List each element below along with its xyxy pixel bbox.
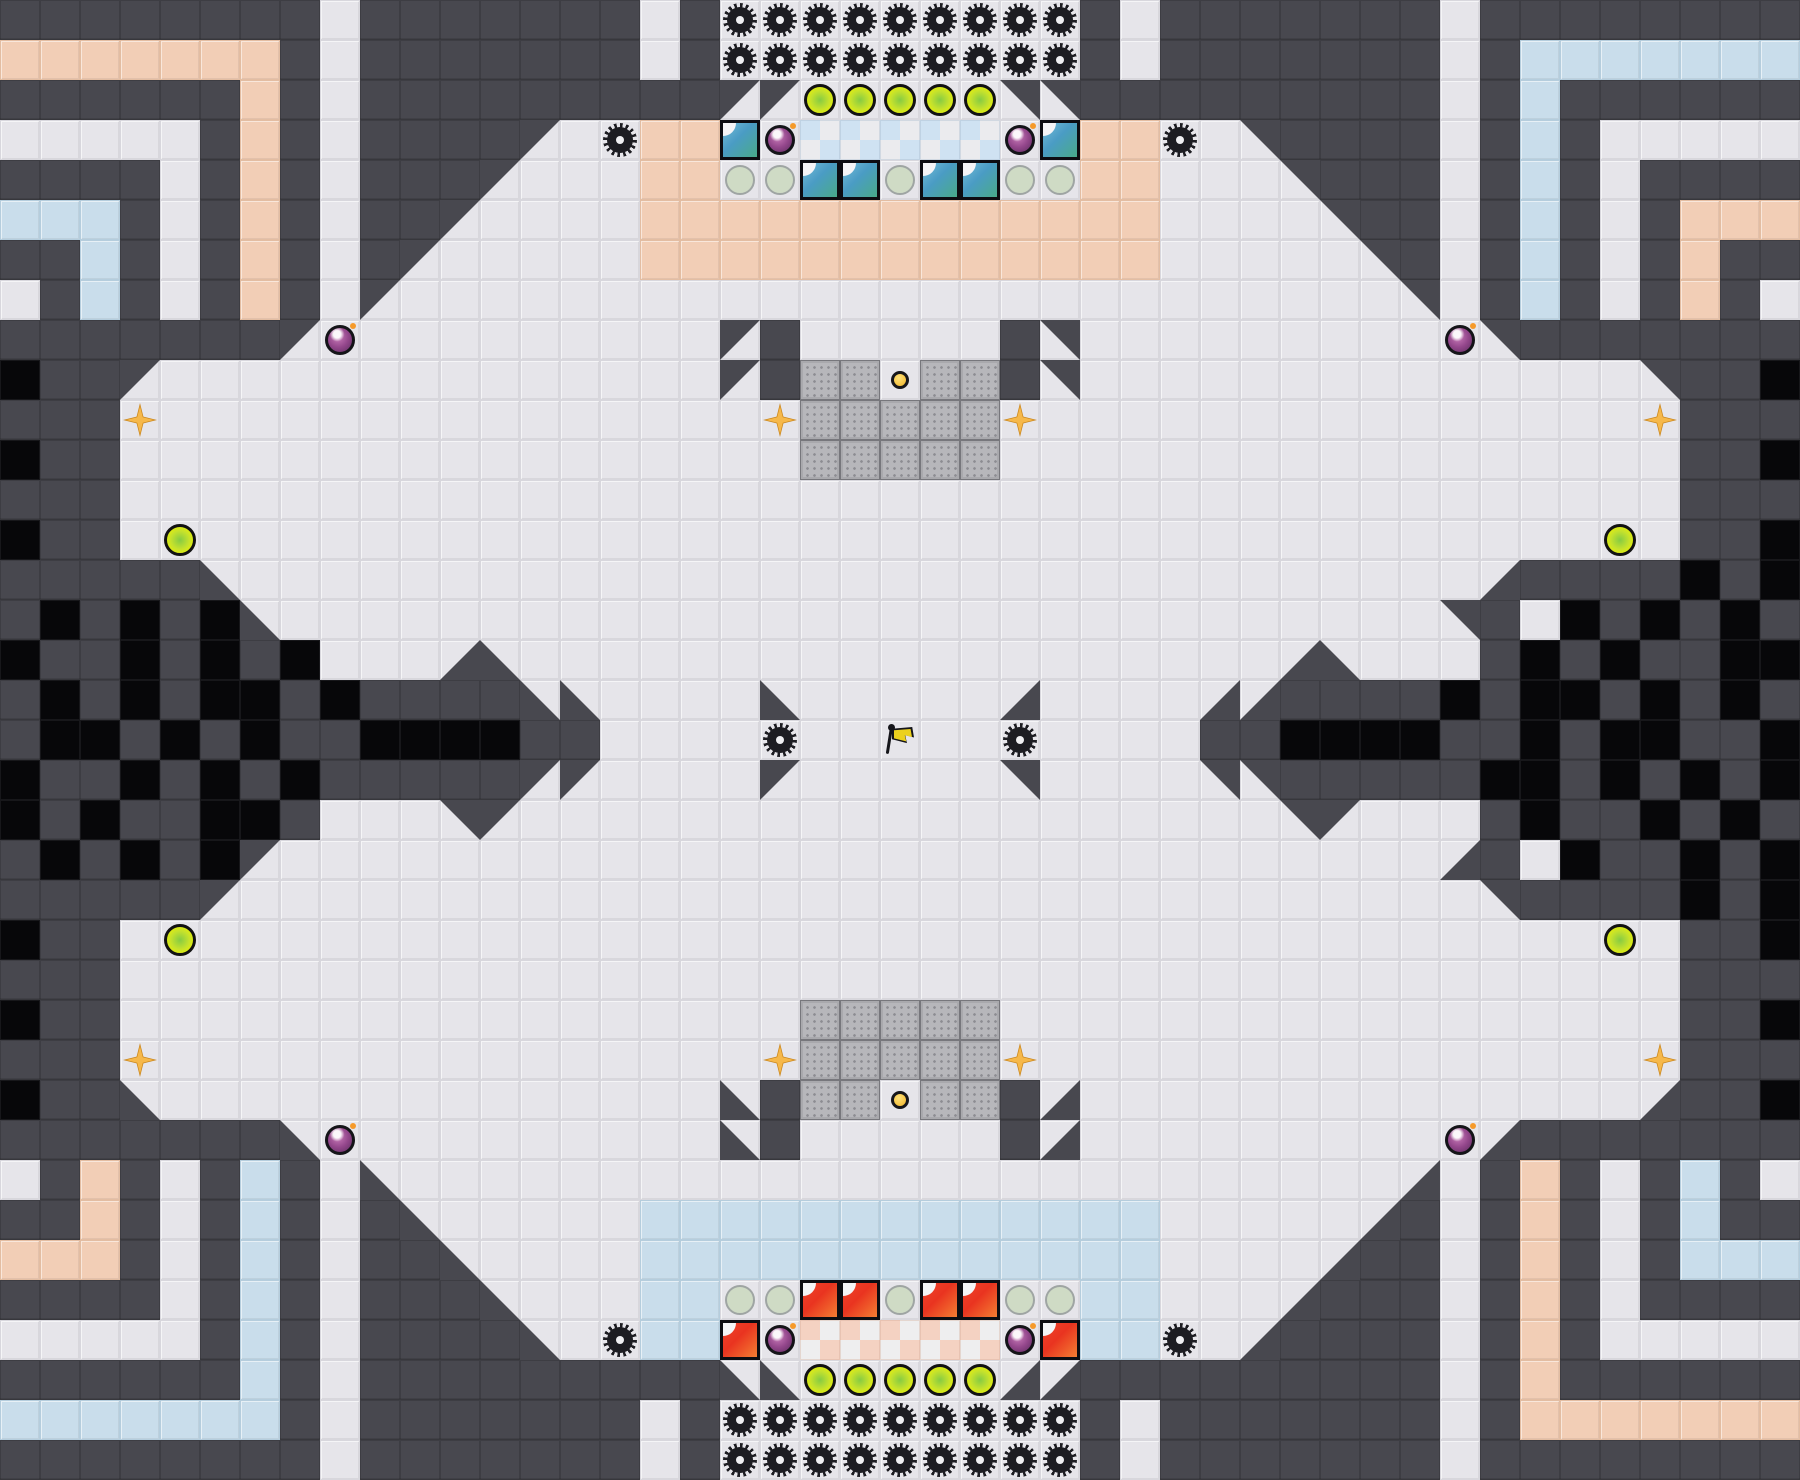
floor-tile — [120, 480, 160, 520]
floor-tile — [520, 240, 560, 280]
boost-icon[interactable] — [1003, 403, 1037, 437]
gate-tile[interactable] — [880, 440, 920, 480]
gate-tile[interactable] — [920, 1000, 960, 1040]
floor-tile — [880, 160, 920, 200]
floor-tile — [360, 600, 400, 640]
floor-tile — [560, 200, 600, 240]
void-tile — [320, 680, 360, 720]
wall-tile — [440, 80, 480, 120]
floor-tile — [1520, 440, 1560, 480]
void-tile — [1520, 760, 1560, 800]
floor-tile — [560, 1000, 600, 1040]
floor-tile — [720, 160, 760, 200]
floor-tile — [1640, 520, 1680, 560]
wall-tile — [1320, 0, 1360, 40]
floor-tile — [480, 400, 520, 440]
wall-tile — [680, 80, 720, 120]
floor-tile — [920, 280, 960, 320]
floor-tile — [400, 320, 440, 360]
spike-icon — [1003, 1403, 1037, 1437]
spike-icon — [963, 1443, 997, 1477]
wall-tile — [0, 80, 40, 120]
gate-tile[interactable] — [840, 1040, 880, 1080]
powerup-icon[interactable] — [924, 84, 956, 116]
button-icon[interactable] — [891, 371, 909, 389]
gate-tile[interactable] — [840, 400, 880, 440]
wall-tile — [80, 520, 120, 560]
wall-tile — [120, 880, 160, 920]
floor-tile — [1080, 280, 1120, 320]
floor-tile — [480, 1280, 520, 1320]
wall-triangle-bl — [520, 1320, 560, 1360]
gate-tile[interactable] — [800, 1080, 840, 1120]
floor-tile — [600, 600, 640, 640]
wall-tile — [1640, 320, 1680, 360]
wall-tile — [0, 1200, 40, 1240]
wall-triangle-tr — [1240, 760, 1280, 800]
floor-tile — [960, 680, 1000, 720]
floor-tile — [680, 1040, 720, 1080]
gate-tile[interactable] — [920, 400, 960, 440]
floor-tile — [1280, 600, 1320, 640]
gate-tile[interactable] — [840, 440, 880, 480]
wall-tile — [1280, 1440, 1320, 1480]
wall-tile — [1480, 240, 1520, 280]
floor-tile — [1200, 1120, 1240, 1160]
floor-tile — [1040, 40, 1080, 80]
floor-tile — [1160, 720, 1200, 760]
peach-floor-tile — [1120, 240, 1160, 280]
floor-tile — [1200, 1040, 1240, 1080]
peach-floor-tile — [240, 120, 280, 160]
floor-tile — [1000, 280, 1040, 320]
wall-tile — [1320, 40, 1360, 80]
pad-circle-icon — [1045, 1285, 1075, 1315]
red-endzone-tile — [880, 1320, 920, 1360]
floor-tile — [1000, 1160, 1040, 1200]
wall-tile — [80, 680, 120, 720]
floor-tile — [1320, 440, 1360, 480]
floor-tile — [1440, 880, 1480, 920]
powerup-icon[interactable] — [924, 1364, 956, 1396]
floor-tile — [280, 360, 320, 400]
wall-tile — [120, 1120, 160, 1160]
wall-tile — [240, 1120, 280, 1160]
wall-tile — [1320, 1400, 1360, 1440]
gate-tile[interactable] — [960, 400, 1000, 440]
floor-tile — [360, 1000, 400, 1040]
powerup-icon[interactable] — [884, 84, 916, 116]
floor-tile — [840, 480, 880, 520]
wall-tile — [1600, 840, 1640, 880]
floor-tile — [720, 960, 760, 1000]
floor-tile — [1080, 560, 1120, 600]
wall-tile — [1720, 840, 1760, 880]
floor-tile — [440, 1200, 480, 1240]
boost-icon[interactable] — [123, 1043, 157, 1077]
floor-tile — [1000, 880, 1040, 920]
floor-tile — [800, 1360, 840, 1400]
floor-tile — [640, 480, 680, 520]
void-tile — [0, 440, 40, 480]
wall-tile — [1320, 1280, 1360, 1320]
floor-tile — [400, 280, 440, 320]
powerup-icon[interactable] — [164, 524, 196, 556]
floor-tile — [520, 1040, 560, 1080]
floor-tile — [760, 640, 800, 680]
gate-tile[interactable] — [960, 1040, 1000, 1080]
floor-tile — [1240, 840, 1280, 880]
peach-floor-tile — [240, 280, 280, 320]
powerup-icon[interactable] — [1604, 524, 1636, 556]
void-tile — [200, 800, 240, 840]
wall-tile — [1320, 1320, 1360, 1360]
floor-tile — [1040, 800, 1080, 840]
floor-tile — [1280, 800, 1320, 840]
floor-tile — [280, 480, 320, 520]
floor-tile — [1280, 1000, 1320, 1040]
floor-tile — [1040, 1120, 1080, 1160]
floor-tile — [640, 920, 680, 960]
wall-tile — [1480, 40, 1520, 80]
floor-tile — [1480, 440, 1520, 480]
gate-tile[interactable] — [800, 440, 840, 480]
boost-icon[interactable] — [763, 1043, 797, 1077]
gate-tile[interactable] — [960, 360, 1000, 400]
floor-tile — [1200, 680, 1240, 720]
floor-tile — [1160, 240, 1200, 280]
wall-triangle-tl — [720, 360, 760, 400]
spike-icon — [843, 3, 877, 37]
wall-tile — [480, 1400, 520, 1440]
floor-tile — [760, 1280, 800, 1320]
spike-icon — [1043, 43, 1077, 77]
floor-tile — [160, 280, 200, 320]
floor-tile — [600, 720, 640, 760]
floor-tile — [1000, 160, 1040, 200]
floor-tile — [1360, 1200, 1400, 1240]
floor-tile — [1200, 840, 1240, 880]
floor-tile — [600, 1320, 640, 1360]
wall-tile — [1520, 1120, 1560, 1160]
void-tile — [240, 800, 280, 840]
floor-tile — [80, 1320, 120, 1360]
floor-tile — [640, 800, 680, 840]
wall-tile — [200, 1360, 240, 1400]
floor-tile — [1480, 400, 1520, 440]
wall-tile — [1560, 760, 1600, 800]
floor-tile — [160, 1000, 200, 1040]
wall-tile — [1520, 560, 1560, 600]
floor-tile — [440, 600, 480, 640]
floor-tile — [1440, 560, 1480, 600]
powerup-icon[interactable] — [964, 84, 996, 116]
floor-tile — [720, 1160, 760, 1200]
floor-tile — [680, 600, 720, 640]
floor-tile — [1160, 560, 1200, 600]
floor-tile — [160, 920, 200, 960]
peach-floor-tile — [240, 40, 280, 80]
powerup-icon[interactable] — [844, 1364, 876, 1396]
wall-tile — [1080, 0, 1120, 40]
floor-tile — [320, 1440, 360, 1480]
wall-tile — [200, 1440, 240, 1480]
floor-tile — [480, 200, 520, 240]
boost-icon[interactable] — [1003, 1043, 1037, 1077]
powerup-icon[interactable] — [804, 84, 836, 116]
gate-tile[interactable] — [840, 1080, 880, 1120]
gate-tile[interactable] — [800, 400, 840, 440]
wall-triangle-br — [440, 640, 480, 680]
blue-endzone-tile — [920, 120, 960, 160]
gate-tile[interactable] — [880, 1000, 920, 1040]
wall-tile — [120, 1360, 160, 1400]
peach-floor-tile — [720, 200, 760, 240]
floor-tile — [1240, 880, 1280, 920]
peach-floor-tile — [920, 240, 960, 280]
void-tile — [120, 760, 160, 800]
floor-tile — [1320, 320, 1360, 360]
wall-tile — [320, 720, 360, 760]
wall-tile — [440, 1400, 480, 1440]
flag-icon[interactable] — [886, 724, 914, 756]
wall-triangle-tr — [440, 800, 480, 840]
wall-tile — [360, 240, 400, 280]
void-tile — [1480, 760, 1520, 800]
floor-tile — [560, 1200, 600, 1240]
wall-tile — [1560, 1440, 1600, 1480]
floor-tile — [1600, 1200, 1640, 1240]
floor-tile — [1320, 1120, 1360, 1160]
floor-tile — [1360, 520, 1400, 560]
peach-floor-tile — [80, 40, 120, 80]
wall-tile — [1400, 1240, 1440, 1280]
floor-tile — [1440, 1080, 1480, 1120]
floor-tile — [1120, 560, 1160, 600]
bomb-icon[interactable] — [1005, 125, 1035, 155]
powerup-icon[interactable] — [964, 1364, 996, 1396]
wall-tile — [1720, 1360, 1760, 1400]
wall-tile — [120, 160, 160, 200]
blue-floor-tile — [680, 1240, 720, 1280]
powerup-icon[interactable] — [164, 924, 196, 956]
gate-tile[interactable] — [920, 360, 960, 400]
gate-tile[interactable] — [960, 1000, 1000, 1040]
gate-tile[interactable] — [840, 1000, 880, 1040]
pad-circle-icon — [885, 1285, 915, 1315]
blue-floor-tile — [1040, 1240, 1080, 1280]
wall-tile — [1720, 1080, 1760, 1120]
void-tile — [0, 1000, 40, 1040]
wall-tile — [1480, 1240, 1520, 1280]
boost-icon[interactable] — [1643, 1043, 1677, 1077]
wall-triangle-br — [1000, 680, 1040, 720]
floor-tile — [920, 800, 960, 840]
floor-tile — [1480, 1000, 1520, 1040]
void-tile — [1520, 640, 1560, 680]
wall-triangle-br — [1360, 1200, 1400, 1240]
wall-tile — [560, 1400, 600, 1440]
floor-tile — [1280, 880, 1320, 920]
void-tile — [1640, 800, 1680, 840]
gate-tile[interactable] — [960, 1080, 1000, 1120]
wall-tile — [1560, 1240, 1600, 1280]
floor-tile — [200, 1000, 240, 1040]
red-endzone-tile — [920, 1320, 960, 1360]
blue-team-tile — [800, 160, 840, 200]
floor-tile — [880, 1400, 920, 1440]
floor-tile — [1120, 440, 1160, 480]
void-tile — [200, 680, 240, 720]
floor-tile — [1120, 360, 1160, 400]
floor-tile — [1600, 280, 1640, 320]
floor-tile — [840, 520, 880, 560]
floor-tile — [160, 960, 200, 1000]
button-icon[interactable] — [891, 1091, 909, 1109]
floor-tile — [1240, 1160, 1280, 1200]
floor-tile — [760, 920, 800, 960]
floor-tile — [1360, 1160, 1400, 1200]
wall-tile — [160, 0, 200, 40]
bomb-icon[interactable] — [1445, 1125, 1475, 1155]
floor-tile — [920, 0, 960, 40]
gate-tile[interactable] — [920, 1040, 960, 1080]
wall-tile — [40, 440, 80, 480]
wall-tile — [1240, 1360, 1280, 1400]
floor-tile — [760, 400, 800, 440]
pad-circle-icon — [1045, 165, 1075, 195]
boost-icon[interactable] — [763, 403, 797, 437]
wall-tile — [80, 320, 120, 360]
blue-floor-tile — [1520, 120, 1560, 160]
gate-tile[interactable] — [800, 1000, 840, 1040]
floor-tile — [1440, 120, 1480, 160]
bomb-icon[interactable] — [1005, 1325, 1035, 1355]
floor-tile — [320, 280, 360, 320]
floor-tile — [1480, 480, 1520, 520]
gate-tile[interactable] — [920, 1080, 960, 1120]
gate-tile[interactable] — [800, 1040, 840, 1080]
powerup-icon[interactable] — [844, 84, 876, 116]
floor-tile — [1320, 1160, 1360, 1200]
powerup-icon[interactable] — [1604, 924, 1636, 956]
spike-icon — [763, 1443, 797, 1477]
wall-triangle-bl — [480, 1280, 520, 1320]
floor-tile — [1360, 360, 1400, 400]
floor-tile — [1000, 1360, 1040, 1400]
wall-tile — [200, 1160, 240, 1200]
floor-tile — [440, 960, 480, 1000]
void-tile — [0, 920, 40, 960]
spike-icon — [883, 1403, 917, 1437]
floor-tile — [560, 1080, 600, 1120]
wall-tile — [1160, 1360, 1200, 1400]
wall-tile — [360, 1200, 400, 1240]
floor-tile — [440, 280, 480, 320]
floor-tile — [1000, 1000, 1040, 1040]
blue-floor-tile — [1600, 40, 1640, 80]
floor-tile — [1120, 1160, 1160, 1200]
bomb-icon[interactable] — [325, 1125, 355, 1155]
powerup-icon[interactable] — [804, 1364, 836, 1396]
floor-tile — [880, 520, 920, 560]
bomb-icon[interactable] — [325, 325, 355, 355]
floor-tile — [1080, 520, 1120, 560]
wall-tile — [1480, 720, 1520, 760]
floor-tile — [280, 840, 320, 880]
wall-tile — [1360, 1360, 1400, 1400]
spike-icon — [843, 1403, 877, 1437]
wall-tile — [40, 240, 80, 280]
gate-tile[interactable] — [880, 1040, 920, 1080]
gate-tile[interactable] — [880, 400, 920, 440]
floor-tile — [1120, 1040, 1160, 1080]
floor-tile — [1040, 960, 1080, 1000]
spike-icon — [963, 3, 997, 37]
floor-tile — [760, 440, 800, 480]
floor-tile — [480, 1160, 520, 1200]
gate-tile[interactable] — [920, 440, 960, 480]
floor-tile — [1400, 800, 1440, 840]
void-tile — [1760, 360, 1800, 400]
floor-tile — [120, 1080, 160, 1120]
floor-tile — [720, 440, 760, 480]
floor-tile — [1240, 960, 1280, 1000]
floor-tile — [1080, 960, 1120, 1000]
bomb-icon[interactable] — [765, 125, 795, 155]
floor-tile — [640, 960, 680, 1000]
gate-tile[interactable] — [800, 360, 840, 400]
wall-tile — [80, 600, 120, 640]
wall-tile — [1640, 1200, 1680, 1240]
floor-tile — [1120, 800, 1160, 840]
floor-tile — [480, 440, 520, 480]
wall-tile — [80, 880, 120, 920]
floor-tile — [200, 560, 240, 600]
pad-circle-icon — [725, 165, 755, 195]
wall-tile — [280, 1360, 320, 1400]
gate-tile[interactable] — [840, 360, 880, 400]
boost-icon[interactable] — [1643, 403, 1677, 437]
floor-tile — [1240, 560, 1280, 600]
floor-tile — [1160, 120, 1200, 160]
void-tile — [1680, 760, 1720, 800]
boost-icon[interactable] — [123, 403, 157, 437]
floor-tile — [560, 920, 600, 960]
floor-tile — [160, 1080, 200, 1120]
void-tile — [400, 720, 440, 760]
gate-tile[interactable] — [960, 440, 1000, 480]
wall-tile — [1480, 1320, 1520, 1360]
floor-tile — [760, 760, 800, 800]
floor-tile — [520, 1320, 560, 1360]
floor-tile — [600, 680, 640, 720]
blue-endzone-tile — [960, 120, 1000, 160]
floor-tile — [1280, 960, 1320, 1000]
bomb-icon[interactable] — [765, 1325, 795, 1355]
floor-tile — [1280, 1280, 1320, 1320]
floor-tile — [320, 1080, 360, 1120]
powerup-icon[interactable] — [884, 1364, 916, 1396]
wall-tile — [1480, 1280, 1520, 1320]
wall-tile — [440, 0, 480, 40]
floor-tile — [1160, 1320, 1200, 1360]
floor-tile — [880, 1120, 920, 1160]
spike-icon — [1003, 3, 1037, 37]
void-tile — [1760, 440, 1800, 480]
peach-floor-tile — [120, 40, 160, 80]
bomb-icon[interactable] — [1445, 325, 1475, 355]
